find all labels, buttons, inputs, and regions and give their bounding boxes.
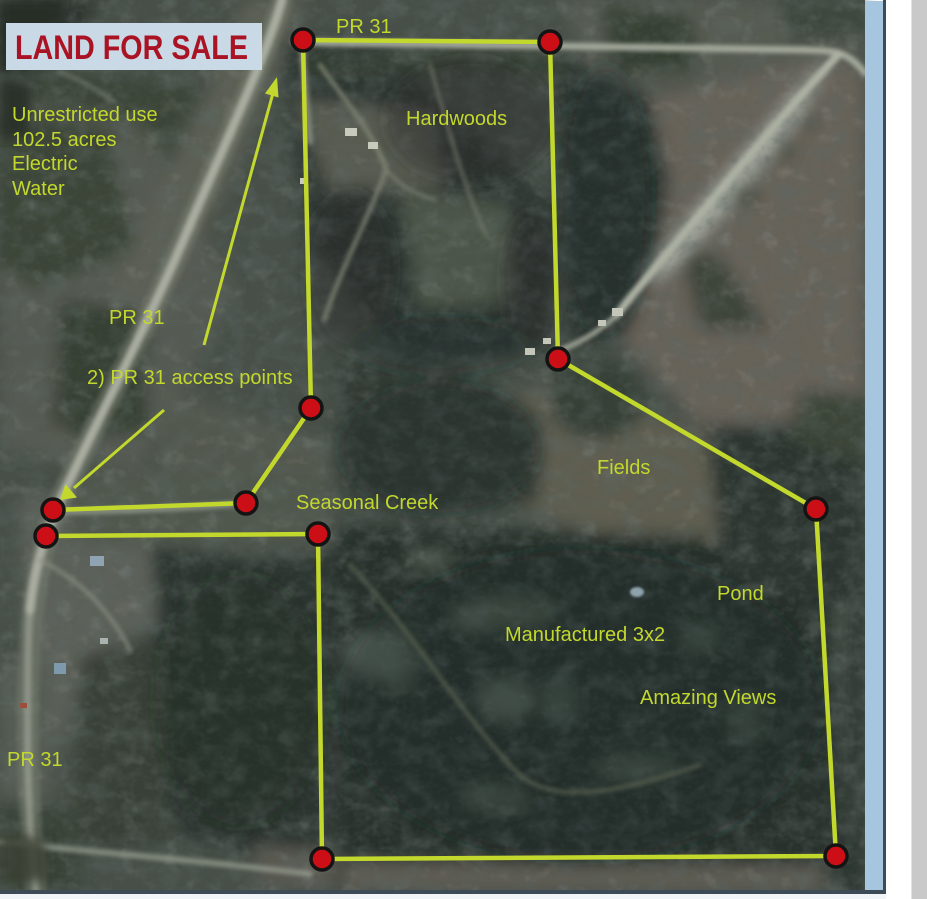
svg-text:LAND FOR SALE: LAND FOR SALE (15, 29, 248, 67)
svg-text:Seasonal Creek: Seasonal Creek (296, 492, 439, 514)
svg-text:PR 31: PR 31 (336, 16, 392, 38)
svg-text:Manufactured 3x2: Manufactured 3x2 (505, 624, 665, 646)
svg-text:102.5 acres: 102.5 acres (12, 129, 117, 151)
svg-text:Amazing Views: Amazing Views (640, 687, 776, 709)
svg-text:2) PR 31 access points: 2) PR 31 access points (87, 367, 293, 389)
svg-text:Pond: Pond (717, 583, 764, 605)
svg-text:Fields: Fields (597, 457, 650, 479)
svg-text:PR 31: PR 31 (109, 307, 165, 329)
svg-text:Unrestricted use: Unrestricted use (12, 104, 158, 126)
svg-text:PR 31: PR 31 (7, 749, 63, 771)
svg-text:Hardwoods: Hardwoods (406, 108, 507, 130)
svg-text:Water: Water (12, 178, 65, 200)
svg-text:Electric: Electric (12, 153, 78, 175)
